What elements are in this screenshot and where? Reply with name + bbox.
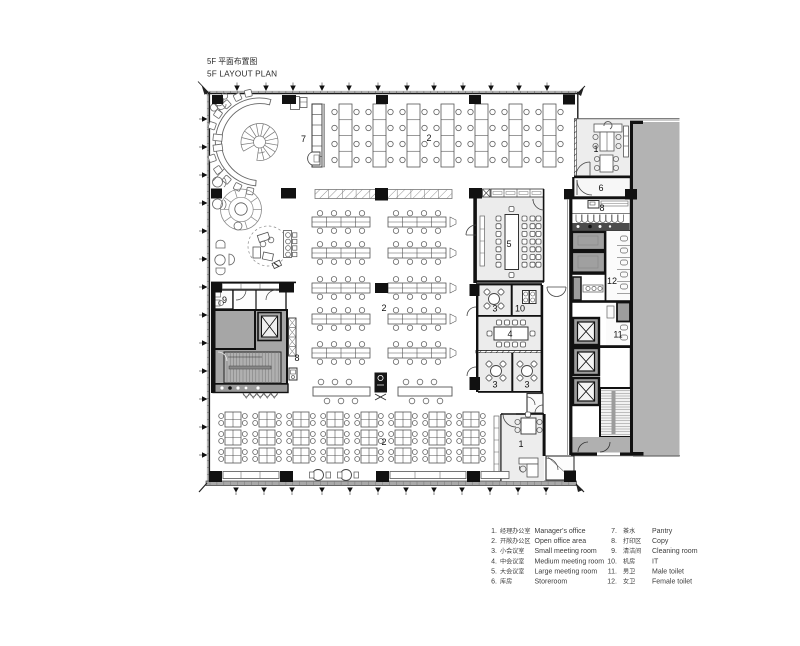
svg-text:9.: 9.: [611, 548, 617, 555]
svg-text:机房: 机房: [623, 557, 635, 565]
svg-text:3: 3: [492, 304, 497, 314]
svg-text:3.: 3.: [491, 548, 497, 555]
svg-text:中会议室: 中会议室: [500, 557, 524, 565]
svg-text:5: 5: [506, 239, 511, 249]
svg-text:1: 1: [593, 144, 598, 154]
svg-text:1: 1: [518, 439, 523, 449]
svg-text:清洁间: 清洁间: [623, 547, 641, 555]
svg-text:经理办公室: 经理办公室: [500, 527, 530, 535]
svg-text:2.: 2.: [491, 538, 497, 545]
svg-text:打印区: 打印区: [623, 537, 641, 545]
svg-text:2: 2: [381, 437, 386, 447]
svg-text:11: 11: [613, 330, 622, 340]
svg-text:男卫: 男卫: [623, 568, 635, 575]
svg-text:Male toilet: Male toilet: [652, 568, 684, 575]
svg-text:12: 12: [607, 276, 617, 286]
svg-text:2: 2: [381, 303, 386, 313]
svg-text:Pantry: Pantry: [652, 528, 673, 535]
svg-text:女卫: 女卫: [623, 578, 635, 586]
svg-text:5F LAYOUT PLAN: 5F LAYOUT PLAN: [207, 70, 277, 79]
svg-text:2: 2: [426, 133, 431, 143]
svg-text:7.: 7.: [611, 528, 617, 535]
svg-text:8.: 8.: [611, 538, 617, 545]
svg-text:8: 8: [294, 353, 299, 363]
svg-text:9: 9: [222, 295, 227, 305]
svg-text:Manager's office: Manager's office: [535, 528, 586, 535]
svg-text:10.: 10.: [607, 558, 617, 565]
svg-text:Female toilet: Female toilet: [652, 579, 692, 586]
svg-text:4: 4: [507, 329, 512, 339]
svg-text:Medium meeting room: Medium meeting room: [535, 558, 605, 565]
svg-text:12.: 12.: [607, 579, 617, 586]
svg-text:Large meeting room: Large meeting room: [535, 568, 598, 575]
svg-text:Copy: Copy: [652, 538, 669, 545]
svg-text:Cleaning room: Cleaning room: [652, 548, 698, 555]
svg-text:大会议室: 大会议室: [500, 567, 524, 575]
svg-text:IT: IT: [652, 558, 659, 565]
svg-text:3: 3: [492, 380, 497, 390]
svg-text:1.: 1.: [491, 528, 497, 535]
svg-text:库房: 库房: [500, 578, 512, 586]
svg-text:Open office area: Open office area: [535, 538, 587, 545]
svg-text:6.: 6.: [491, 579, 497, 586]
svg-text:4.: 4.: [491, 558, 497, 565]
svg-text:Storeroom: Storeroom: [535, 579, 568, 586]
svg-text:11.: 11.: [608, 568, 617, 575]
svg-text:3: 3: [524, 380, 529, 390]
svg-text:5F 平面布置图: 5F 平面布置图: [207, 56, 257, 66]
svg-text:5.: 5.: [491, 568, 497, 575]
svg-text:开敞办公区: 开敞办公区: [500, 537, 530, 545]
svg-text:茶水: 茶水: [623, 527, 635, 535]
svg-text:8: 8: [599, 203, 604, 213]
svg-text:6: 6: [598, 183, 603, 193]
svg-text:Small meeting room: Small meeting room: [535, 548, 597, 555]
svg-text:小会议室: 小会议室: [500, 547, 524, 555]
svg-text:7: 7: [301, 134, 306, 144]
svg-text:10: 10: [515, 304, 525, 314]
